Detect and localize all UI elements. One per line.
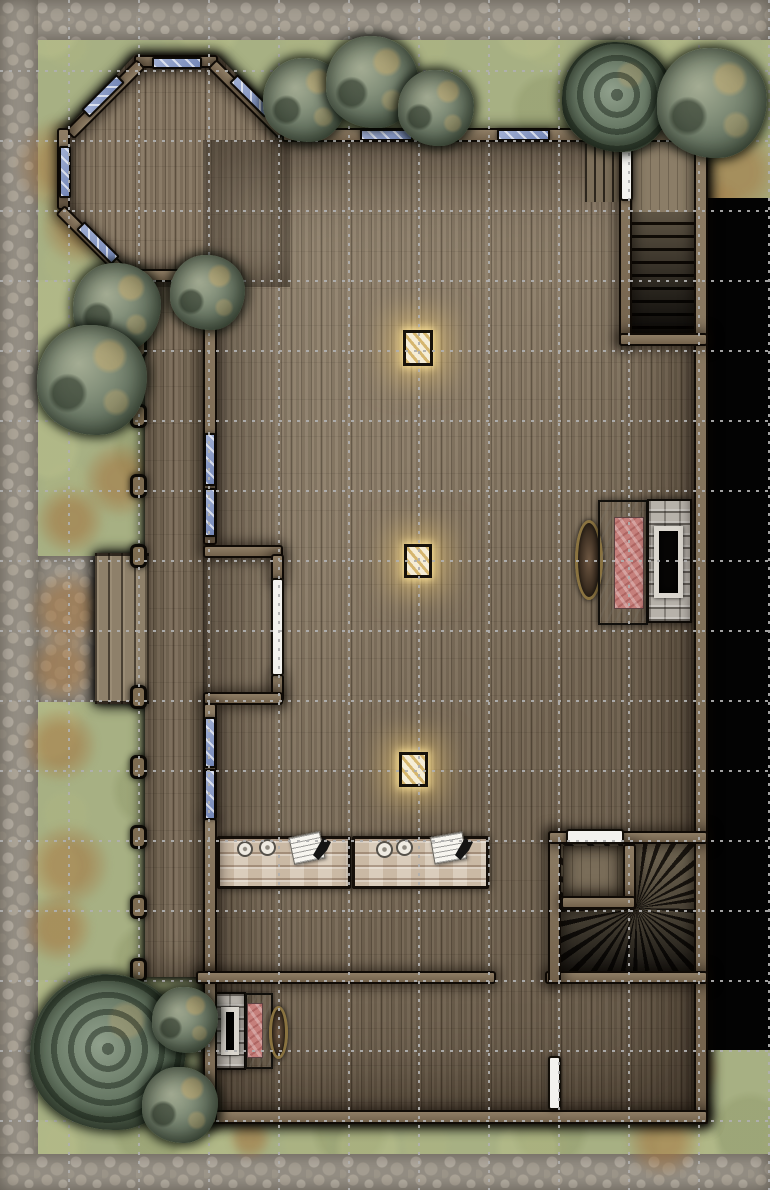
door-store-room — [548, 1056, 561, 1110]
porch-post — [130, 685, 147, 709]
wall-ornament — [269, 1006, 288, 1059]
long-table — [352, 836, 489, 889]
window — [152, 57, 202, 69]
dirt-patch — [27, 633, 97, 703]
window — [81, 74, 125, 118]
plate — [376, 841, 393, 858]
dirt-patch — [75, 185, 135, 245]
window — [360, 129, 413, 141]
porch-post — [130, 474, 147, 498]
stairroom-north-wall — [548, 831, 708, 844]
red-blanket — [247, 1003, 263, 1058]
grid-line-h — [0, 840, 770, 842]
grid-line-h — [0, 420, 770, 422]
porch-post — [130, 283, 147, 307]
grid-line-v — [488, 0, 490, 1190]
deck-shading — [145, 275, 207, 977]
quill — [455, 838, 473, 860]
grid-line-v — [628, 0, 630, 1190]
dirt-patch — [23, 893, 93, 963]
winder-staircase — [561, 844, 698, 972]
alcove-wall-bottom — [203, 692, 283, 705]
dirt-patch — [625, 1102, 701, 1178]
storeroom-west-wall — [203, 972, 217, 1124]
hearth-opening — [654, 526, 683, 598]
porch-post — [130, 958, 147, 982]
void-layer — [0, 0, 770, 1190]
grid-line-h — [0, 350, 770, 352]
stone-path-top — [0, 0, 770, 40]
papers — [288, 831, 325, 865]
stairshaft-west-wall — [619, 128, 632, 346]
hall-lighting — [203, 140, 708, 1124]
long-table — [217, 836, 351, 889]
grid-line-h — [0, 1050, 770, 1052]
grid-line-h — [0, 70, 770, 72]
stone-path-left — [0, 0, 38, 1190]
doors-layer — [0, 0, 770, 1190]
closet-floor — [563, 846, 623, 896]
alcove-door-jamb — [271, 554, 284, 582]
stairs-layer — [0, 0, 770, 1190]
alcove-door-jamb — [271, 674, 284, 702]
windows-layer — [0, 0, 770, 1190]
porch-post — [130, 755, 147, 779]
dirt-patch — [687, 124, 770, 220]
dirt-patch — [35, 485, 105, 555]
door-stair-landing — [620, 144, 633, 201]
bush — [170, 255, 245, 330]
closet-east-wall — [623, 844, 636, 910]
bay-shading — [57, 55, 290, 287]
walls-layer — [0, 0, 770, 1190]
bay-wall-north — [134, 55, 218, 68]
lighting-layer — [0, 0, 770, 1190]
grid-line-v — [418, 0, 420, 1190]
window — [76, 221, 120, 265]
alcove-wall-top — [203, 545, 283, 558]
posts-layer — [0, 0, 770, 1190]
cross-wall-west — [196, 971, 496, 984]
bush — [73, 263, 161, 351]
grid-line-v — [278, 0, 280, 1190]
bush — [37, 325, 147, 435]
window — [204, 488, 216, 537]
door-west-alcove — [271, 578, 284, 676]
glowing-lantern — [404, 544, 432, 578]
bay-wall-ne-diagonal — [207, 59, 288, 140]
grid-layer — [0, 0, 770, 1190]
stone-fireplace — [647, 499, 692, 623]
grid-line-v — [558, 0, 560, 1190]
stairshaft-south-wall — [619, 333, 708, 346]
grid-line-v — [138, 0, 140, 1190]
grid-line-h — [0, 280, 770, 282]
cross-wall-east — [545, 971, 708, 984]
furniture-layer — [0, 0, 770, 1190]
window — [229, 74, 273, 118]
grid-line-v — [698, 0, 700, 1190]
bay-wall-south — [126, 269, 216, 282]
glowing-lantern — [399, 752, 428, 787]
porch-post — [130, 544, 147, 568]
grid-line-h — [0, 140, 770, 142]
dirt-patch — [26, 823, 110, 907]
red-blanket — [614, 517, 644, 609]
bed-frame — [245, 993, 273, 1069]
grid-line-h — [0, 700, 770, 702]
bush — [657, 48, 767, 158]
grid-line-v — [208, 0, 210, 1190]
battle-map — [0, 0, 770, 1190]
west-wall-mid — [203, 703, 217, 820]
glowing-lantern — [403, 330, 433, 366]
grid-line-h — [0, 1120, 770, 1122]
porch-post — [130, 895, 147, 919]
dirt-patch — [14, 117, 110, 213]
dirt-patch — [228, 1116, 272, 1160]
grid-line-h — [0, 980, 770, 982]
east-wall — [694, 128, 708, 1124]
grid-line-h — [0, 560, 770, 562]
dirt-patch — [677, 180, 747, 250]
stair-side-steps — [585, 144, 621, 202]
grid-line-h — [0, 910, 770, 912]
building-floors — [0, 0, 770, 1190]
dirt-patch — [82, 442, 158, 518]
north-wall — [282, 128, 708, 142]
floor-bay — [57, 55, 290, 287]
stairroom-west-wall — [548, 831, 561, 984]
bush — [326, 36, 418, 128]
window — [59, 146, 71, 198]
grid-line-v — [348, 0, 350, 1190]
wall-ornament — [575, 520, 603, 600]
west-wall-upper — [203, 275, 217, 545]
plate — [396, 839, 413, 856]
bush — [263, 58, 347, 142]
hearth-opening — [221, 1007, 239, 1055]
floor-great-hall — [203, 140, 708, 1124]
grid-line-h — [0, 210, 770, 212]
stone-path-bottom — [0, 1154, 770, 1190]
stone-walkway — [38, 556, 96, 702]
tree — [30, 974, 186, 1130]
window — [204, 769, 216, 820]
window — [204, 717, 216, 768]
dirt-patch — [22, 707, 98, 783]
window — [497, 129, 550, 141]
papers — [430, 831, 467, 864]
bush — [398, 70, 474, 146]
quill — [313, 838, 331, 860]
grid-line-v — [68, 0, 70, 1190]
south-wall — [196, 1110, 708, 1124]
door-stair-room — [566, 829, 624, 844]
closet-south-wall — [561, 896, 636, 909]
vegetation-layer — [0, 0, 770, 1190]
stone-path-layer — [0, 0, 770, 1190]
porch-post — [130, 404, 147, 428]
bush — [152, 987, 218, 1053]
floor-porch-deck — [145, 275, 207, 977]
bay-wall-west — [57, 128, 70, 210]
bush — [142, 1067, 218, 1143]
stair-landing — [632, 142, 694, 212]
west-wall-lower — [203, 818, 217, 975]
dirt-patch — [40, 185, 120, 265]
plate — [259, 839, 276, 856]
bed-frame — [598, 500, 648, 625]
grid-line-h — [0, 490, 770, 492]
dirt-patch — [28, 570, 108, 650]
porch-steps — [95, 553, 149, 704]
plate — [237, 841, 253, 857]
grid-line-h — [0, 770, 770, 772]
porch-post — [130, 825, 147, 849]
porch-post — [130, 334, 147, 358]
unexplored-void — [706, 198, 770, 1050]
staircase-down — [632, 212, 694, 333]
tree — [562, 42, 672, 152]
bay-wall-sw-diagonal — [55, 205, 135, 285]
stone-fireplace — [212, 992, 246, 1070]
grid-line-h — [0, 630, 770, 632]
dirt-patch-layer — [0, 0, 770, 1190]
bay-wall-nw-diagonal — [65, 59, 146, 140]
dirt-patch — [664, 1040, 720, 1096]
window — [204, 433, 216, 486]
